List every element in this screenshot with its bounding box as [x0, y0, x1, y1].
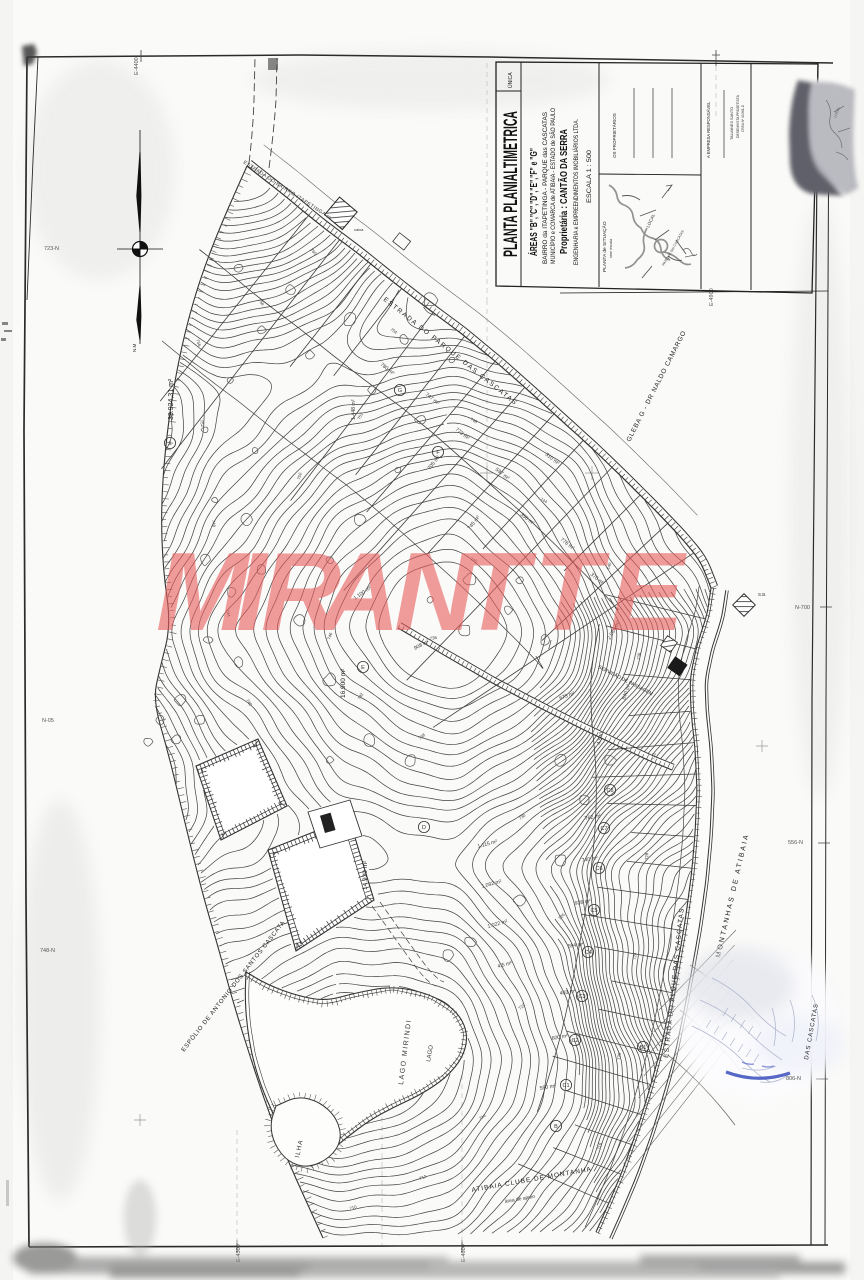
svg-text:732: 732: [651, 752, 657, 760]
svg-text:14.930 m²: 14.930 m²: [362, 860, 369, 890]
svg-text:N-700: N-700: [795, 605, 810, 611]
svg-text:748: 748: [211, 520, 217, 528]
svg-text:B1: B1: [640, 1045, 647, 1051]
svg-text:E: E: [361, 665, 365, 671]
svg-text:C3: C3: [578, 994, 585, 1000]
svg-text:C6: C6: [595, 866, 602, 872]
svg-text:ÚNICA: ÚNICA: [507, 72, 514, 88]
svg-text:TALVANES SANTO: TALVANES SANTO: [730, 107, 734, 140]
svg-text:ESCALA 1 : 500: ESCALA 1 : 500: [586, 150, 593, 203]
svg-text:C4: C4: [584, 950, 591, 956]
svg-text:G: G: [398, 388, 402, 394]
svg-text:PLANTA PLANIALTIMETRICA: PLANTA PLANIALTIMETRICA: [501, 111, 522, 257]
svg-text:1: 1: [168, 441, 171, 447]
svg-text:OS PROPRIETÁRIOS: OS PROPRIETÁRIOS: [611, 113, 617, 158]
svg-text:D: D: [422, 825, 426, 831]
svg-text:724: 724: [632, 952, 638, 960]
svg-text:723-N: 723-N: [44, 246, 59, 252]
svg-text:S.B.: S.B.: [758, 592, 767, 597]
svg-text:MUNICÍPIO e COMARCA de ATIBAIA: MUNICÍPIO e COMARCA de ATIBAIA - ESTADO …: [550, 108, 557, 264]
svg-text:A EMPRESA RESPONSÁVEL: A EMPRESA RESPONSÁVEL: [706, 101, 711, 158]
svg-text:PLANTA de SITUAÇÃO: PLANTA de SITUAÇÃO: [601, 221, 608, 272]
svg-text:B: B: [554, 1124, 558, 1130]
svg-text:E-4400: E-4400: [134, 57, 140, 75]
svg-text:sem escala: sem escala: [609, 238, 613, 258]
svg-text:N.M: N.M: [132, 344, 137, 353]
svg-text:728: 728: [644, 852, 649, 860]
svg-text:C1: C1: [562, 1083, 569, 1089]
svg-text:556-N: 556-N: [788, 840, 803, 846]
svg-text:C2: C2: [571, 1038, 578, 1044]
svg-text:C5: C5: [590, 908, 597, 914]
svg-text:C7: C7: [600, 826, 607, 832]
svg-text:33.924,31 m²: 33.924,31 m²: [168, 378, 175, 420]
svg-text:N-05: N-05: [42, 718, 54, 724]
svg-text:16.900 m²: 16.900 m²: [340, 668, 347, 698]
svg-text:Proprietária : CANTÃO DA SE: Proprietária : CANTÃO DA SERRA: [557, 129, 570, 254]
svg-text:C8: C8: [606, 788, 613, 794]
svg-text:DESENHISTA PROJETISTA: DESENHISTA PROJETISTA: [736, 94, 740, 138]
svg-text:ÁREAS "B","C","D","E","F" e ": ÁREAS "B","C","D","E","F" e "G": [527, 148, 540, 256]
svg-text:CREA Nº 40.561-D: CREA Nº 40.561-D: [741, 104, 745, 132]
svg-text:BAIRRO da ITAPETINGA - PARQUE: BAIRRO da ITAPETINGA - PARQUE das CASCAT…: [542, 111, 549, 264]
svg-text:caixa: caixa: [354, 227, 364, 232]
svg-text:806-N: 806-N: [786, 1076, 801, 1082]
svg-text:ENGENHARIA e EMPREENDIMENTOS I: ENGENHARIA e EMPREENDIMENTOS IMOBILIÁRIO…: [573, 119, 580, 265]
svg-text:748-N: 748-N: [40, 948, 55, 954]
